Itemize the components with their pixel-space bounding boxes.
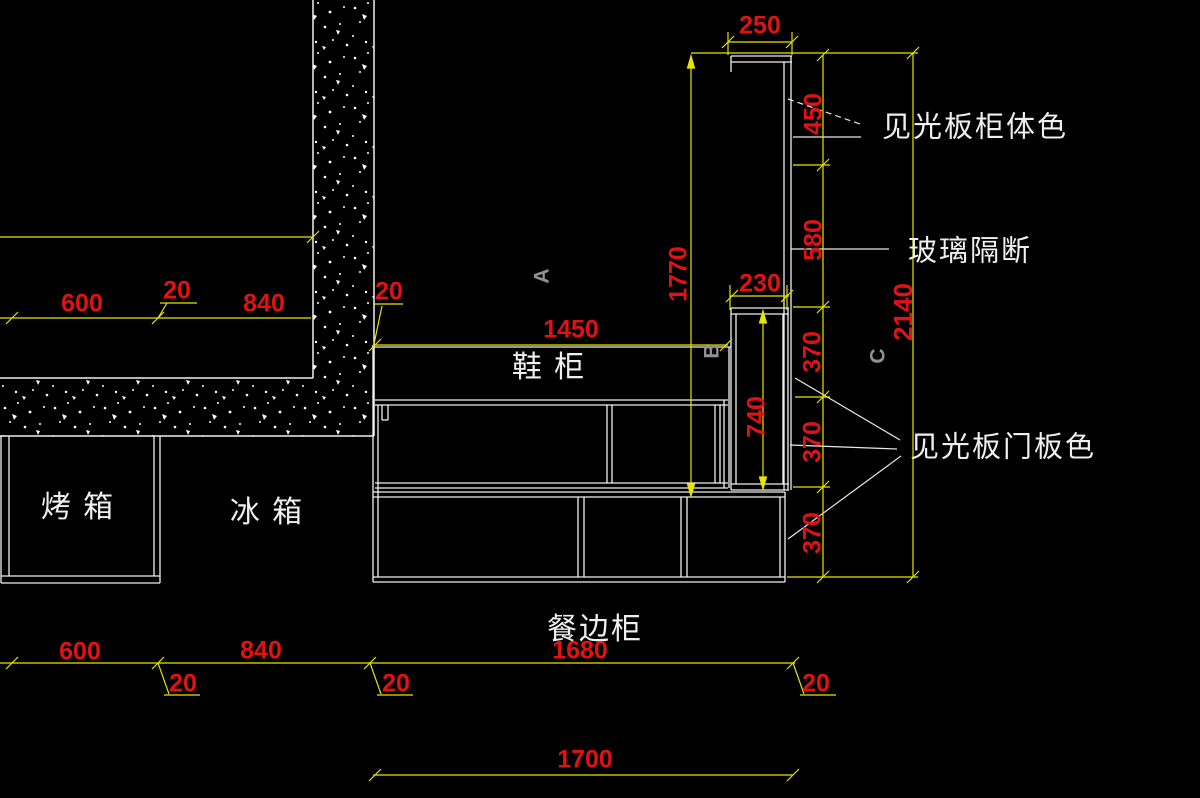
dim-2140: 2140 <box>890 283 916 341</box>
base-cabinet-outline <box>373 492 785 582</box>
dim-1770: 1770 <box>667 246 692 302</box>
dim-20-bottom-right: 20 <box>802 672 830 697</box>
dim-840-top: 840 <box>243 292 285 317</box>
dim-370-lower: 370 <box>801 512 826 554</box>
dim-840-bottom: 840 <box>240 639 282 664</box>
dim-20-bottom-mid: 20 <box>382 672 410 697</box>
dim-20-top-right: 20 <box>375 280 403 305</box>
dim-230: 230 <box>739 272 781 297</box>
label-fridge: 冰 箱 <box>230 498 304 528</box>
cad-elevation-drawing: 250 450 580 2140 1770 230 740 370 370 37… <box>0 0 1200 798</box>
section-letter-a: A <box>532 268 553 283</box>
label-sideboard: 餐边柜 <box>547 615 643 645</box>
dim-1450: 1450 <box>543 318 599 343</box>
label-door-panel-color: 见光板门板色 <box>910 434 1096 463</box>
dim-20-bottom-left: 20 <box>169 672 197 697</box>
dim-250: 250 <box>739 14 781 39</box>
dim-740: 740 <box>745 396 770 438</box>
dim-370-middle: 370 <box>801 421 826 463</box>
dim-580: 580 <box>802 219 827 261</box>
section-letter-b: B <box>702 343 723 358</box>
label-shoe-cabinet: 鞋 柜 <box>512 353 586 383</box>
dim-1700: 1700 <box>557 748 613 773</box>
dim-600-top: 600 <box>61 292 103 317</box>
wall-section <box>0 0 374 436</box>
label-oven: 烤 箱 <box>41 493 115 523</box>
label-cabinet-body-color: 见光板柜体色 <box>882 114 1068 143</box>
dim-20-top-mid: 20 <box>163 279 191 304</box>
dim-370-upper: 370 <box>801 331 826 373</box>
label-glass-partition: 玻璃隔断 <box>908 238 1032 267</box>
section-letter-c: C <box>868 348 889 363</box>
dim-450: 450 <box>802 93 827 135</box>
dim-600-bottom: 600 <box>59 640 101 665</box>
